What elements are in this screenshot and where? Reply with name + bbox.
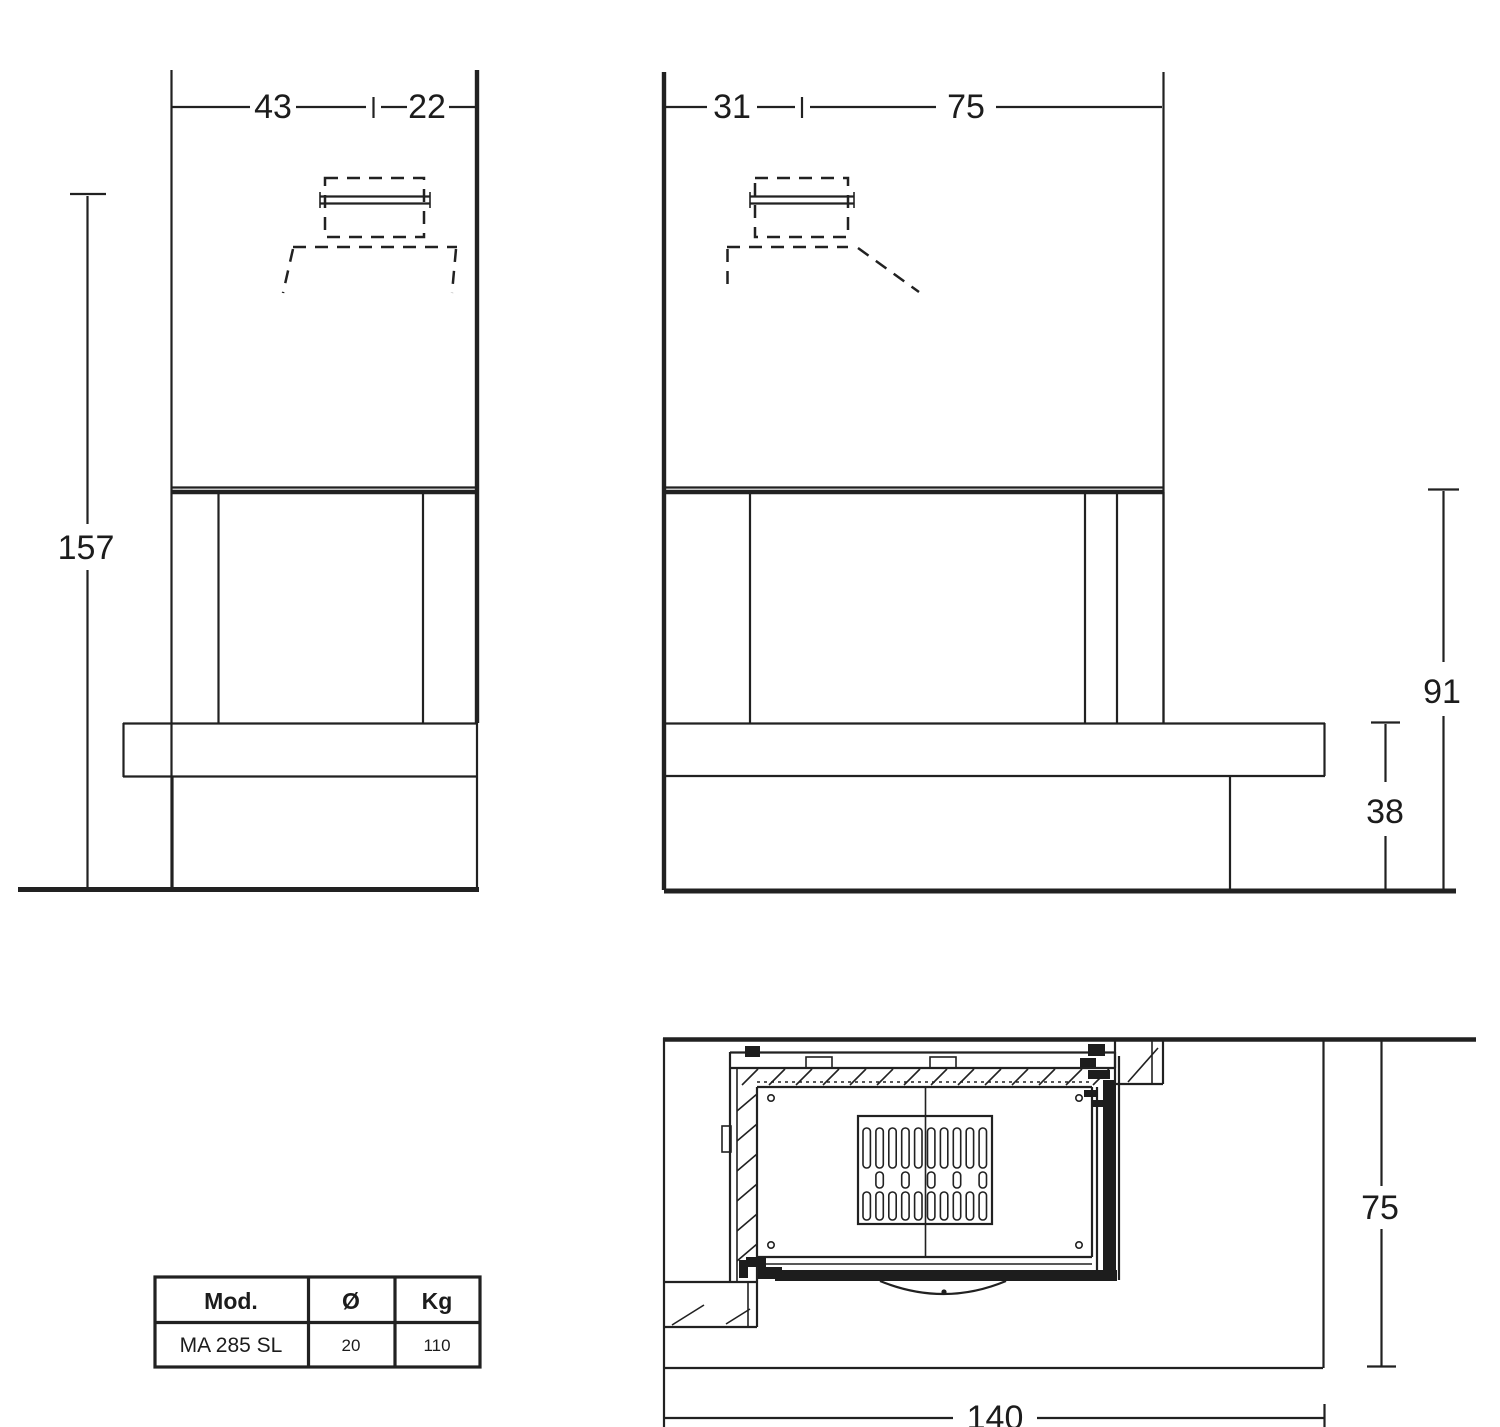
dim-plan-depth: 75 — [1361, 1189, 1399, 1227]
table-header-diameter: Ø — [342, 1288, 360, 1314]
plan-view: 75 140 — [663, 1038, 1476, 1427]
plan-right-frame — [1080, 1056, 1119, 1280]
plan-bench — [664, 1282, 757, 1327]
table-cell-diameter: 20 — [342, 1336, 361, 1355]
table-cell-weight: 110 — [423, 1336, 450, 1355]
side-view: 31 75 — [664, 72, 1461, 891]
dim-plan-width: 140 — [967, 1399, 1024, 1427]
table-header-model: Mod. — [204, 1288, 258, 1314]
front-top-dimension: 43 22 — [172, 88, 476, 126]
front-flue-dashed-outline — [283, 178, 457, 293]
spec-table: Mod. Ø Kg MA 285 SL 20 110 — [155, 1277, 480, 1367]
front-bench — [123, 723, 478, 777]
dim-front-width-left: 43 — [254, 88, 292, 126]
plan-firebox-panel — [757, 1082, 1092, 1257]
dim-side-bench-height: 38 — [1366, 793, 1404, 831]
side-flue-dashed-outline — [727, 178, 919, 293]
plan-door — [739, 1257, 1117, 1295]
plan-right-wall-block — [1115, 1040, 1163, 1084]
dim-side-depth-back: 75 — [947, 88, 985, 126]
table-header-weight: Kg — [422, 1288, 453, 1314]
plan-depth-dimension: 75 — [1361, 1041, 1399, 1367]
plan-top-frame — [730, 1044, 1115, 1068]
table-cell-model: MA 285 SL — [180, 1334, 283, 1357]
plan-width-dimension: 140 — [665, 1399, 1325, 1427]
front-view: 43 22 — [18, 70, 479, 890]
dim-side-opening-height: 91 — [1423, 673, 1461, 711]
dim-front-width-right: 22 — [408, 88, 446, 126]
front-height-dimension: 157 — [58, 194, 115, 888]
technical-drawing-sheet: 43 22 — [0, 0, 1500, 1427]
plan-hatch-left-wall — [737, 1094, 757, 1261]
fireplace-dimension-drawing: 43 22 — [0, 0, 1500, 1427]
side-top-dimension: 31 75 — [666, 88, 1162, 126]
side-bench — [664, 723, 1325, 776]
side-opening-height-dimension: 91 — [1423, 490, 1461, 892]
dim-front-height: 157 — [58, 529, 115, 567]
side-bench-height-dimension: 38 — [1366, 723, 1404, 892]
dim-side-depth-front: 31 — [713, 88, 751, 126]
